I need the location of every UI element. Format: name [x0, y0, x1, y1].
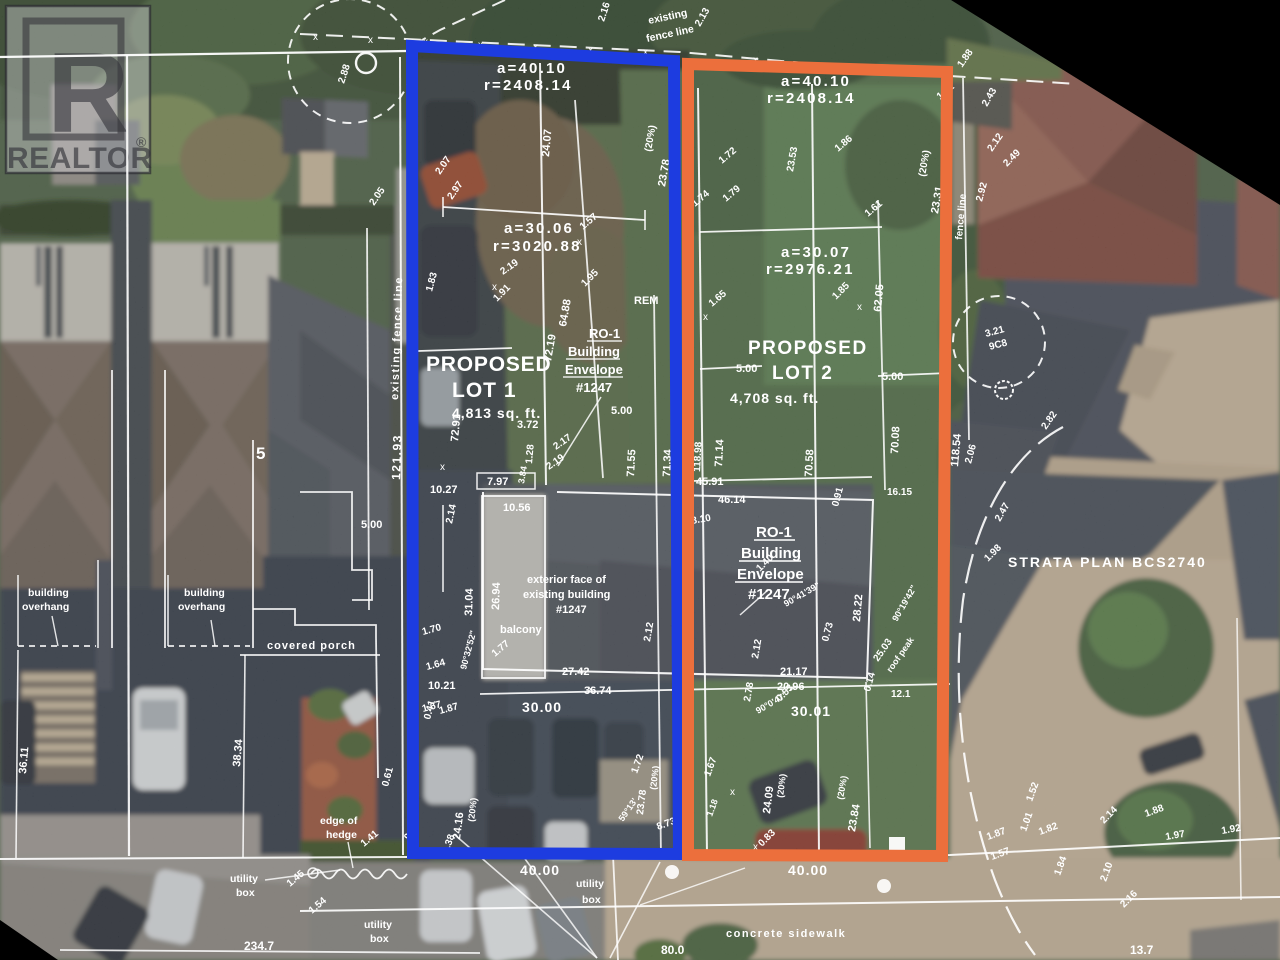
svg-text:box: box [370, 933, 389, 945]
svg-text:10.56: 10.56 [503, 502, 531, 514]
svg-text:71.55: 71.55 [625, 449, 638, 477]
svg-text:70.58: 70.58 [803, 449, 816, 477]
svg-text:x: x [588, 684, 593, 695]
svg-text:72.91: 72.91 [449, 414, 463, 442]
svg-text:45.91: 45.91 [696, 476, 724, 488]
svg-text:building: building [28, 587, 69, 599]
svg-text:REM: REM [634, 295, 658, 307]
svg-text:a=40.10: a=40.10 [781, 73, 851, 90]
svg-text:#1247: #1247 [556, 604, 587, 616]
svg-text:80.0: 80.0 [661, 943, 685, 957]
svg-text:12.1: 12.1 [891, 689, 911, 700]
svg-text:a=30.06: a=30.06 [504, 220, 574, 237]
svg-text:PROPOSED: PROPOSED [426, 353, 551, 376]
svg-text:STRATA PLAN BCS2740: STRATA PLAN BCS2740 [1008, 554, 1207, 570]
svg-text:Building: Building [568, 344, 620, 359]
svg-text:121.93: 121.93 [389, 434, 405, 480]
svg-text:#1247: #1247 [576, 380, 612, 395]
svg-text:21.17: 21.17 [780, 666, 808, 678]
svg-text:box: box [582, 894, 601, 906]
svg-text:7.97: 7.97 [487, 476, 508, 488]
svg-text:overhang: overhang [178, 601, 225, 613]
svg-text:Envelope: Envelope [737, 566, 804, 583]
svg-text:27.42: 27.42 [562, 666, 590, 678]
svg-text:R: R [47, 30, 129, 157]
svg-text:edge of: edge of [320, 815, 358, 827]
svg-text:28.22: 28.22 [851, 594, 865, 622]
svg-text:utility: utility [576, 878, 604, 890]
svg-text:5.00: 5.00 [611, 405, 632, 417]
svg-text:5.00: 5.00 [361, 519, 382, 531]
svg-text:box: box [236, 887, 255, 899]
svg-text:r=2408.14: r=2408.14 [767, 90, 856, 107]
svg-text:x: x [730, 787, 735, 798]
svg-text:x: x [368, 35, 373, 46]
svg-text:LOT 1: LOT 1 [452, 379, 517, 402]
svg-text:26.94: 26.94 [490, 581, 503, 610]
svg-text:62.05: 62.05 [872, 284, 886, 312]
svg-text:5.00: 5.00 [736, 363, 757, 375]
svg-text:a=30.07: a=30.07 [781, 244, 851, 261]
svg-text:r=2976.21: r=2976.21 [766, 261, 855, 278]
svg-text:x: x [313, 32, 318, 43]
svg-text:r=3020.88: r=3020.88 [493, 238, 582, 255]
svg-text:38.34: 38.34 [231, 738, 245, 767]
svg-text:4,708 sq. ft.: 4,708 sq. ft. [730, 390, 819, 406]
svg-text:31.04: 31.04 [463, 587, 476, 616]
svg-text:x: x [857, 302, 862, 313]
svg-text:46.14: 46.14 [718, 494, 746, 506]
svg-text:x: x [577, 237, 582, 248]
svg-text:70.08: 70.08 [889, 426, 902, 454]
svg-text:existing building: existing building [523, 589, 610, 601]
svg-text:234.7: 234.7 [244, 939, 274, 953]
svg-text:hedge: hedge [326, 829, 357, 841]
svg-text:building: building [184, 587, 225, 599]
svg-text:exterior face of: exterior face of [527, 574, 606, 586]
svg-text:utility: utility [230, 873, 258, 885]
svg-text:r=2408.14: r=2408.14 [484, 77, 573, 94]
svg-text:utility: utility [364, 919, 392, 931]
svg-text:RO-1: RO-1 [756, 524, 792, 541]
svg-text:40.00: 40.00 [520, 862, 560, 878]
svg-text:5: 5 [256, 444, 265, 463]
svg-text:x: x [492, 282, 497, 293]
svg-text:16.15: 16.15 [887, 487, 912, 498]
svg-text:x: x [703, 312, 708, 323]
svg-text:24.07: 24.07 [540, 129, 554, 157]
svg-text:13.7: 13.7 [1130, 943, 1154, 957]
svg-text:x: x [440, 462, 445, 473]
svg-text:30.00: 30.00 [522, 699, 562, 715]
svg-text:LOT 2: LOT 2 [772, 363, 833, 384]
svg-text:overhang: overhang [22, 601, 69, 613]
svg-text:40.00: 40.00 [788, 862, 828, 878]
svg-text:71.14: 71.14 [713, 438, 726, 467]
svg-text:10.21: 10.21 [428, 680, 456, 692]
svg-text:RO-1: RO-1 [589, 326, 620, 341]
svg-text:10.27: 10.27 [430, 484, 458, 496]
svg-text:Envelope: Envelope [565, 362, 623, 377]
svg-text:balcony: balcony [500, 624, 542, 636]
svg-text:5.00: 5.00 [882, 371, 903, 383]
svg-text:concrete sidewalk: concrete sidewalk [726, 928, 846, 940]
svg-text:36.11: 36.11 [17, 746, 31, 774]
svg-text:PROPOSED: PROPOSED [748, 338, 868, 359]
svg-text:®: ® [136, 134, 147, 150]
svg-text:30.01: 30.01 [791, 703, 831, 719]
svg-text:REALTOR: REALTOR [7, 142, 153, 175]
svg-text:1.28: 1.28 [524, 443, 537, 464]
svg-text:covered porch: covered porch [267, 640, 356, 652]
svg-text:a=40.10: a=40.10 [497, 60, 567, 77]
svg-text:3.72: 3.72 [517, 419, 538, 431]
